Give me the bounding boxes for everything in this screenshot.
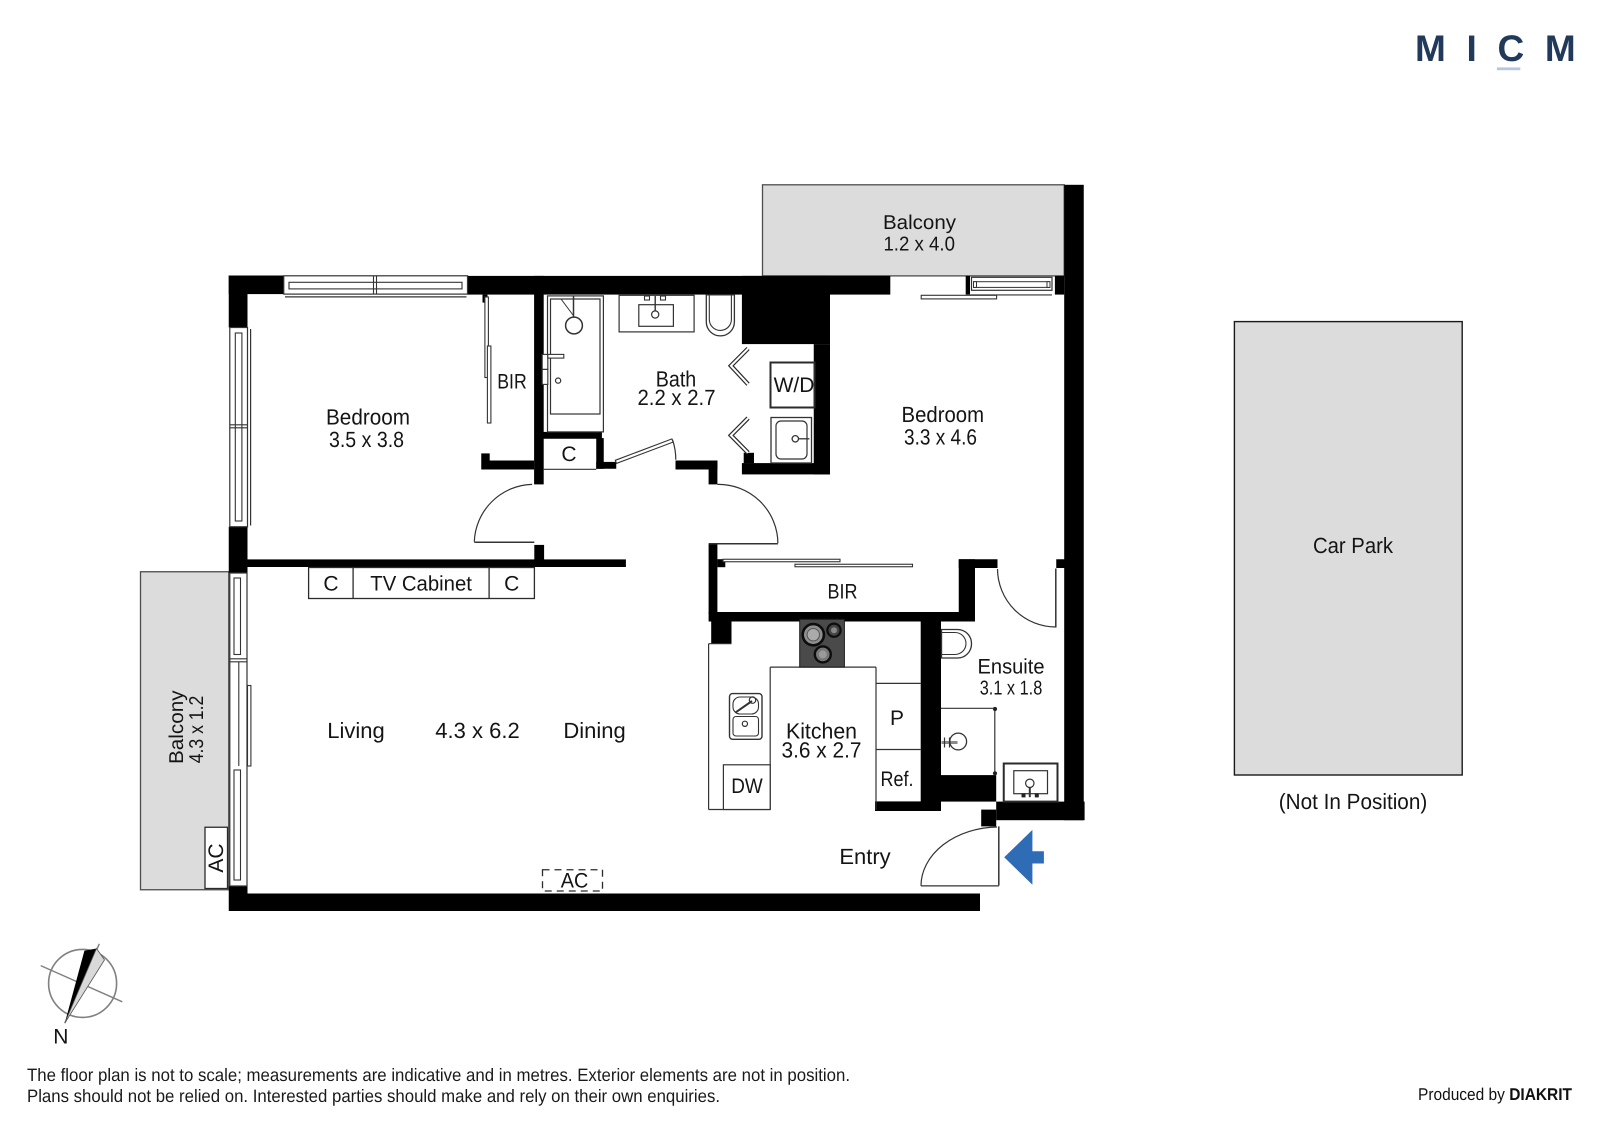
svg-text:N: N — [53, 1026, 68, 1049]
svg-text:3.6 x 2.7: 3.6 x 2.7 — [782, 738, 862, 763]
svg-text:BIR: BIR — [828, 581, 858, 604]
svg-text:1.2 x 4.0: 1.2 x 4.0 — [883, 234, 955, 256]
svg-text:Produced by DIAKRIT: Produced by DIAKRIT — [1418, 1085, 1573, 1104]
svg-text:C: C — [323, 572, 338, 595]
svg-text:Ref.: Ref. — [881, 768, 914, 791]
svg-text:Living: Living — [327, 718, 384, 743]
svg-text:Balcony: Balcony — [166, 690, 188, 764]
svg-text:MICM: MICM — [1415, 28, 1596, 69]
svg-text:Balcony: Balcony — [883, 212, 956, 234]
svg-text:Bedroom: Bedroom — [326, 404, 410, 429]
svg-text:P: P — [890, 707, 904, 730]
svg-text:DW: DW — [731, 775, 763, 798]
svg-text:AC: AC — [561, 870, 589, 893]
svg-text:Ensuite: Ensuite — [978, 656, 1045, 679]
svg-text:2.2 x 2.7: 2.2 x 2.7 — [638, 385, 716, 410]
svg-text:Bedroom: Bedroom — [902, 402, 985, 427]
svg-text:C: C — [504, 572, 519, 595]
svg-text:AC: AC — [205, 843, 228, 872]
svg-text:Dining: Dining — [563, 718, 625, 743]
svg-text:Car Park: Car Park — [1313, 533, 1394, 558]
svg-text:3.3 x 4.6: 3.3 x 4.6 — [904, 425, 977, 450]
svg-text:3.5 x 3.8: 3.5 x 3.8 — [329, 427, 404, 452]
svg-text:3.1 x 1.8: 3.1 x 1.8 — [980, 678, 1043, 700]
svg-text:TV Cabinet: TV Cabinet — [370, 572, 472, 595]
svg-text:The floor plan is not to scale: The floor plan is not to scale; measurem… — [27, 1065, 850, 1085]
svg-text:Plans should not be relied on.: Plans should not be relied on. Intereste… — [27, 1086, 720, 1106]
svg-text:BIR: BIR — [497, 371, 527, 394]
svg-text:4.3 x 6.2: 4.3 x 6.2 — [435, 718, 519, 743]
svg-text:W/D: W/D — [774, 374, 815, 397]
svg-text:Entry: Entry — [839, 844, 890, 869]
svg-text:4.3 x 1.2: 4.3 x 1.2 — [186, 696, 208, 764]
svg-text:C: C — [561, 443, 576, 466]
svg-text:(Not In Position): (Not In Position) — [1279, 789, 1428, 814]
